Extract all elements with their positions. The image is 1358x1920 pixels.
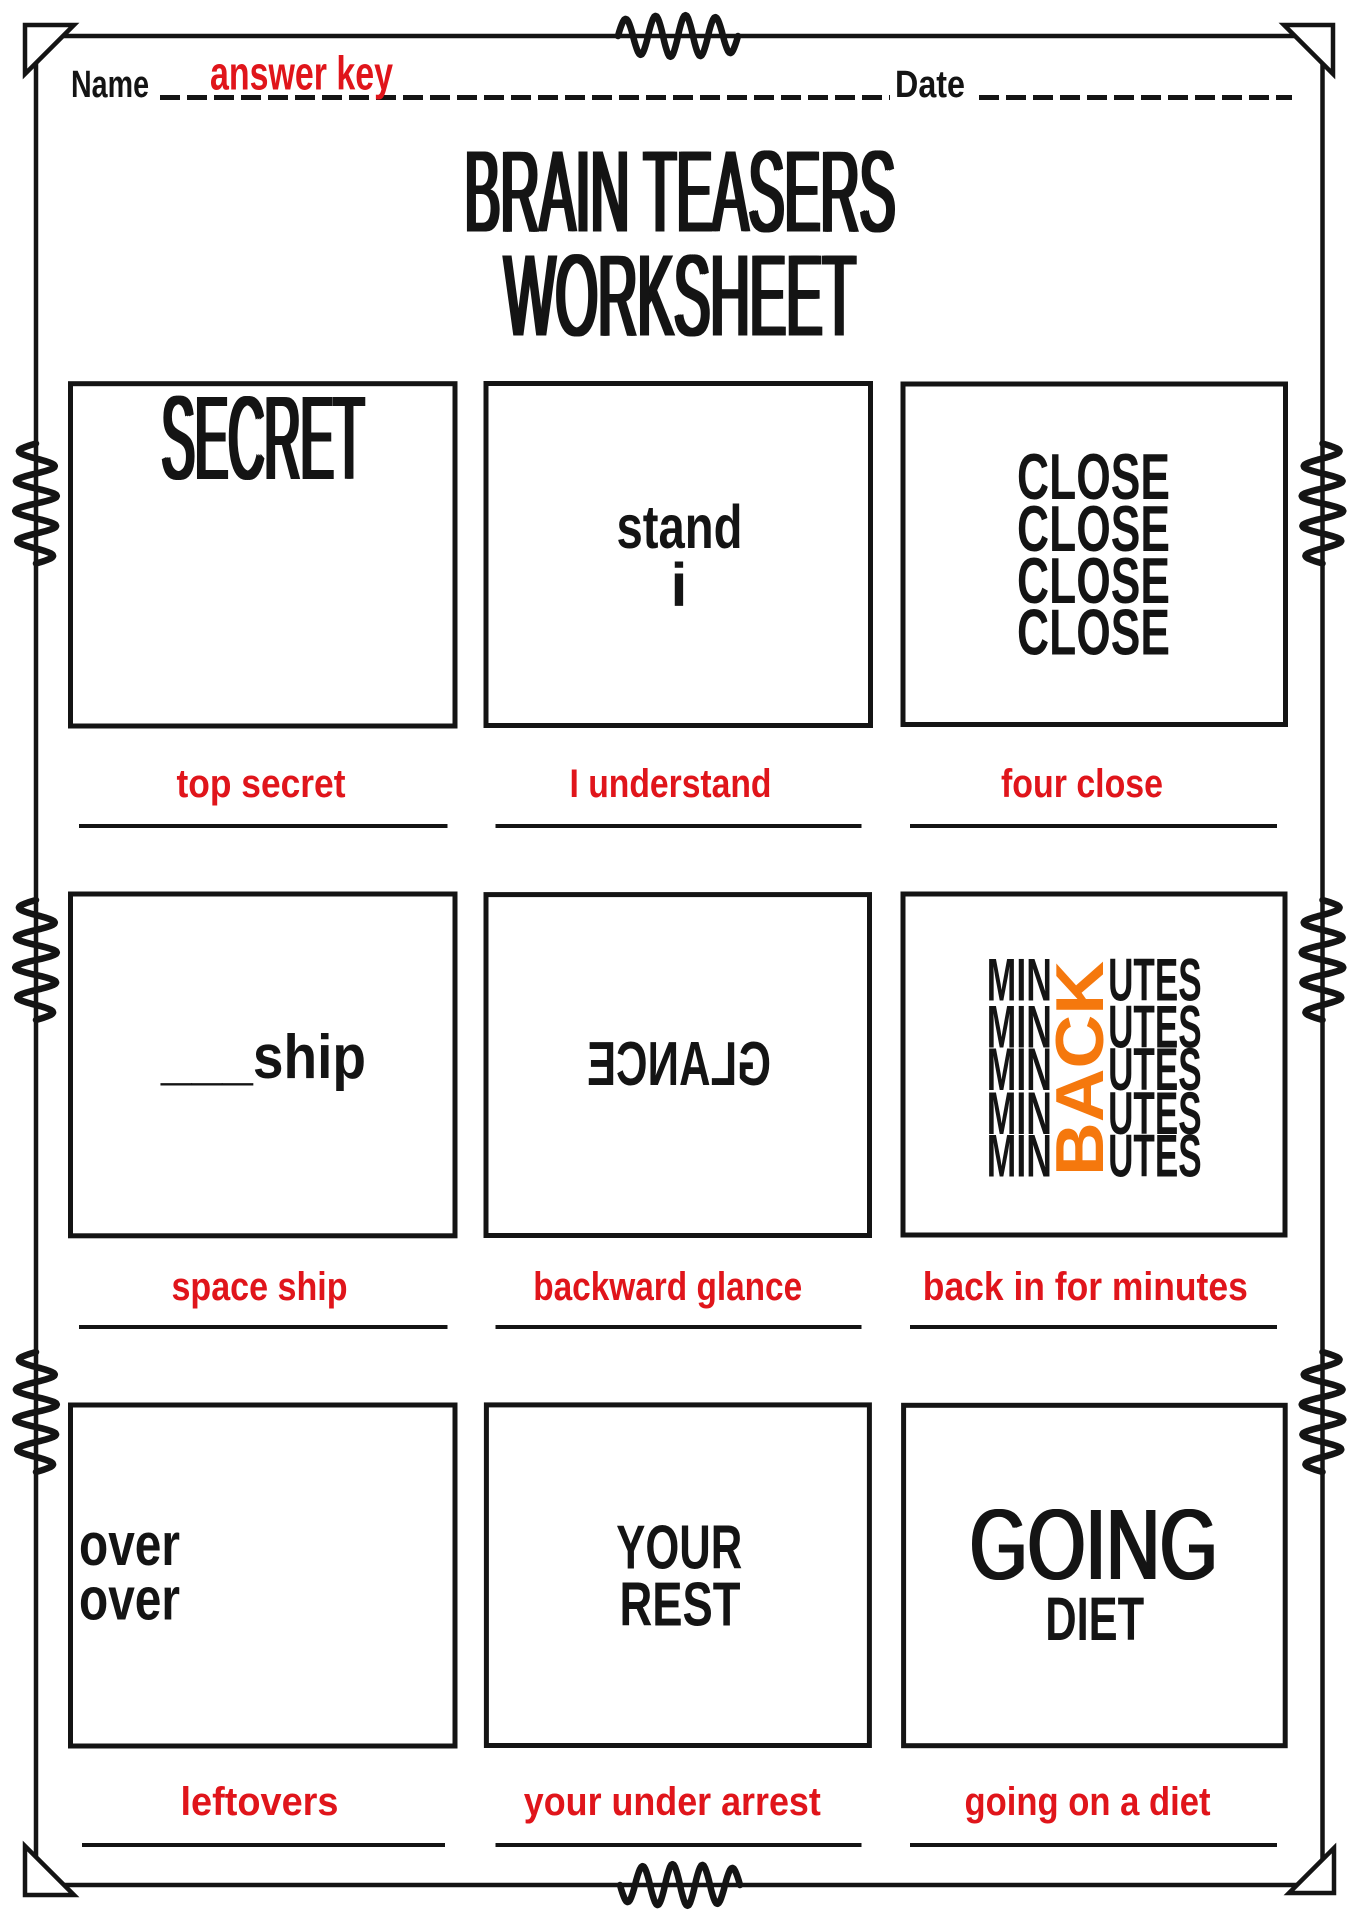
svg-text:answer key: answer key	[210, 47, 393, 100]
svg-text:BACK: BACK	[1042, 961, 1118, 1176]
svg-text:I understand: I understand	[570, 762, 772, 806]
svg-text:Name: Name	[71, 64, 149, 106]
svg-text:___ship: ___ship	[160, 1023, 366, 1092]
svg-text:i: i	[671, 551, 688, 619]
svg-text:over: over	[79, 1566, 180, 1633]
svg-text:going on a diet: going on a diet	[965, 1780, 1211, 1824]
svg-text:four close: four close	[1001, 762, 1163, 806]
svg-text:Date: Date	[895, 64, 965, 106]
svg-text:top secret: top secret	[177, 762, 346, 806]
svg-text:DIET: DIET	[1045, 1585, 1144, 1653]
svg-text:GLANCE: GLANCE	[587, 1029, 771, 1099]
svg-text:back in for minutes: back in for minutes	[923, 1265, 1248, 1309]
svg-text:CLOSE: CLOSE	[1017, 596, 1170, 669]
svg-text:leftovers: leftovers	[181, 1780, 339, 1824]
svg-text:your under arrest: your under arrest	[524, 1780, 821, 1824]
svg-text:backward glance: backward glance	[533, 1265, 802, 1309]
svg-text:UTES: UTES	[1108, 1123, 1202, 1190]
svg-text:space ship: space ship	[172, 1265, 348, 1309]
svg-text:REST: REST	[620, 1571, 741, 1640]
